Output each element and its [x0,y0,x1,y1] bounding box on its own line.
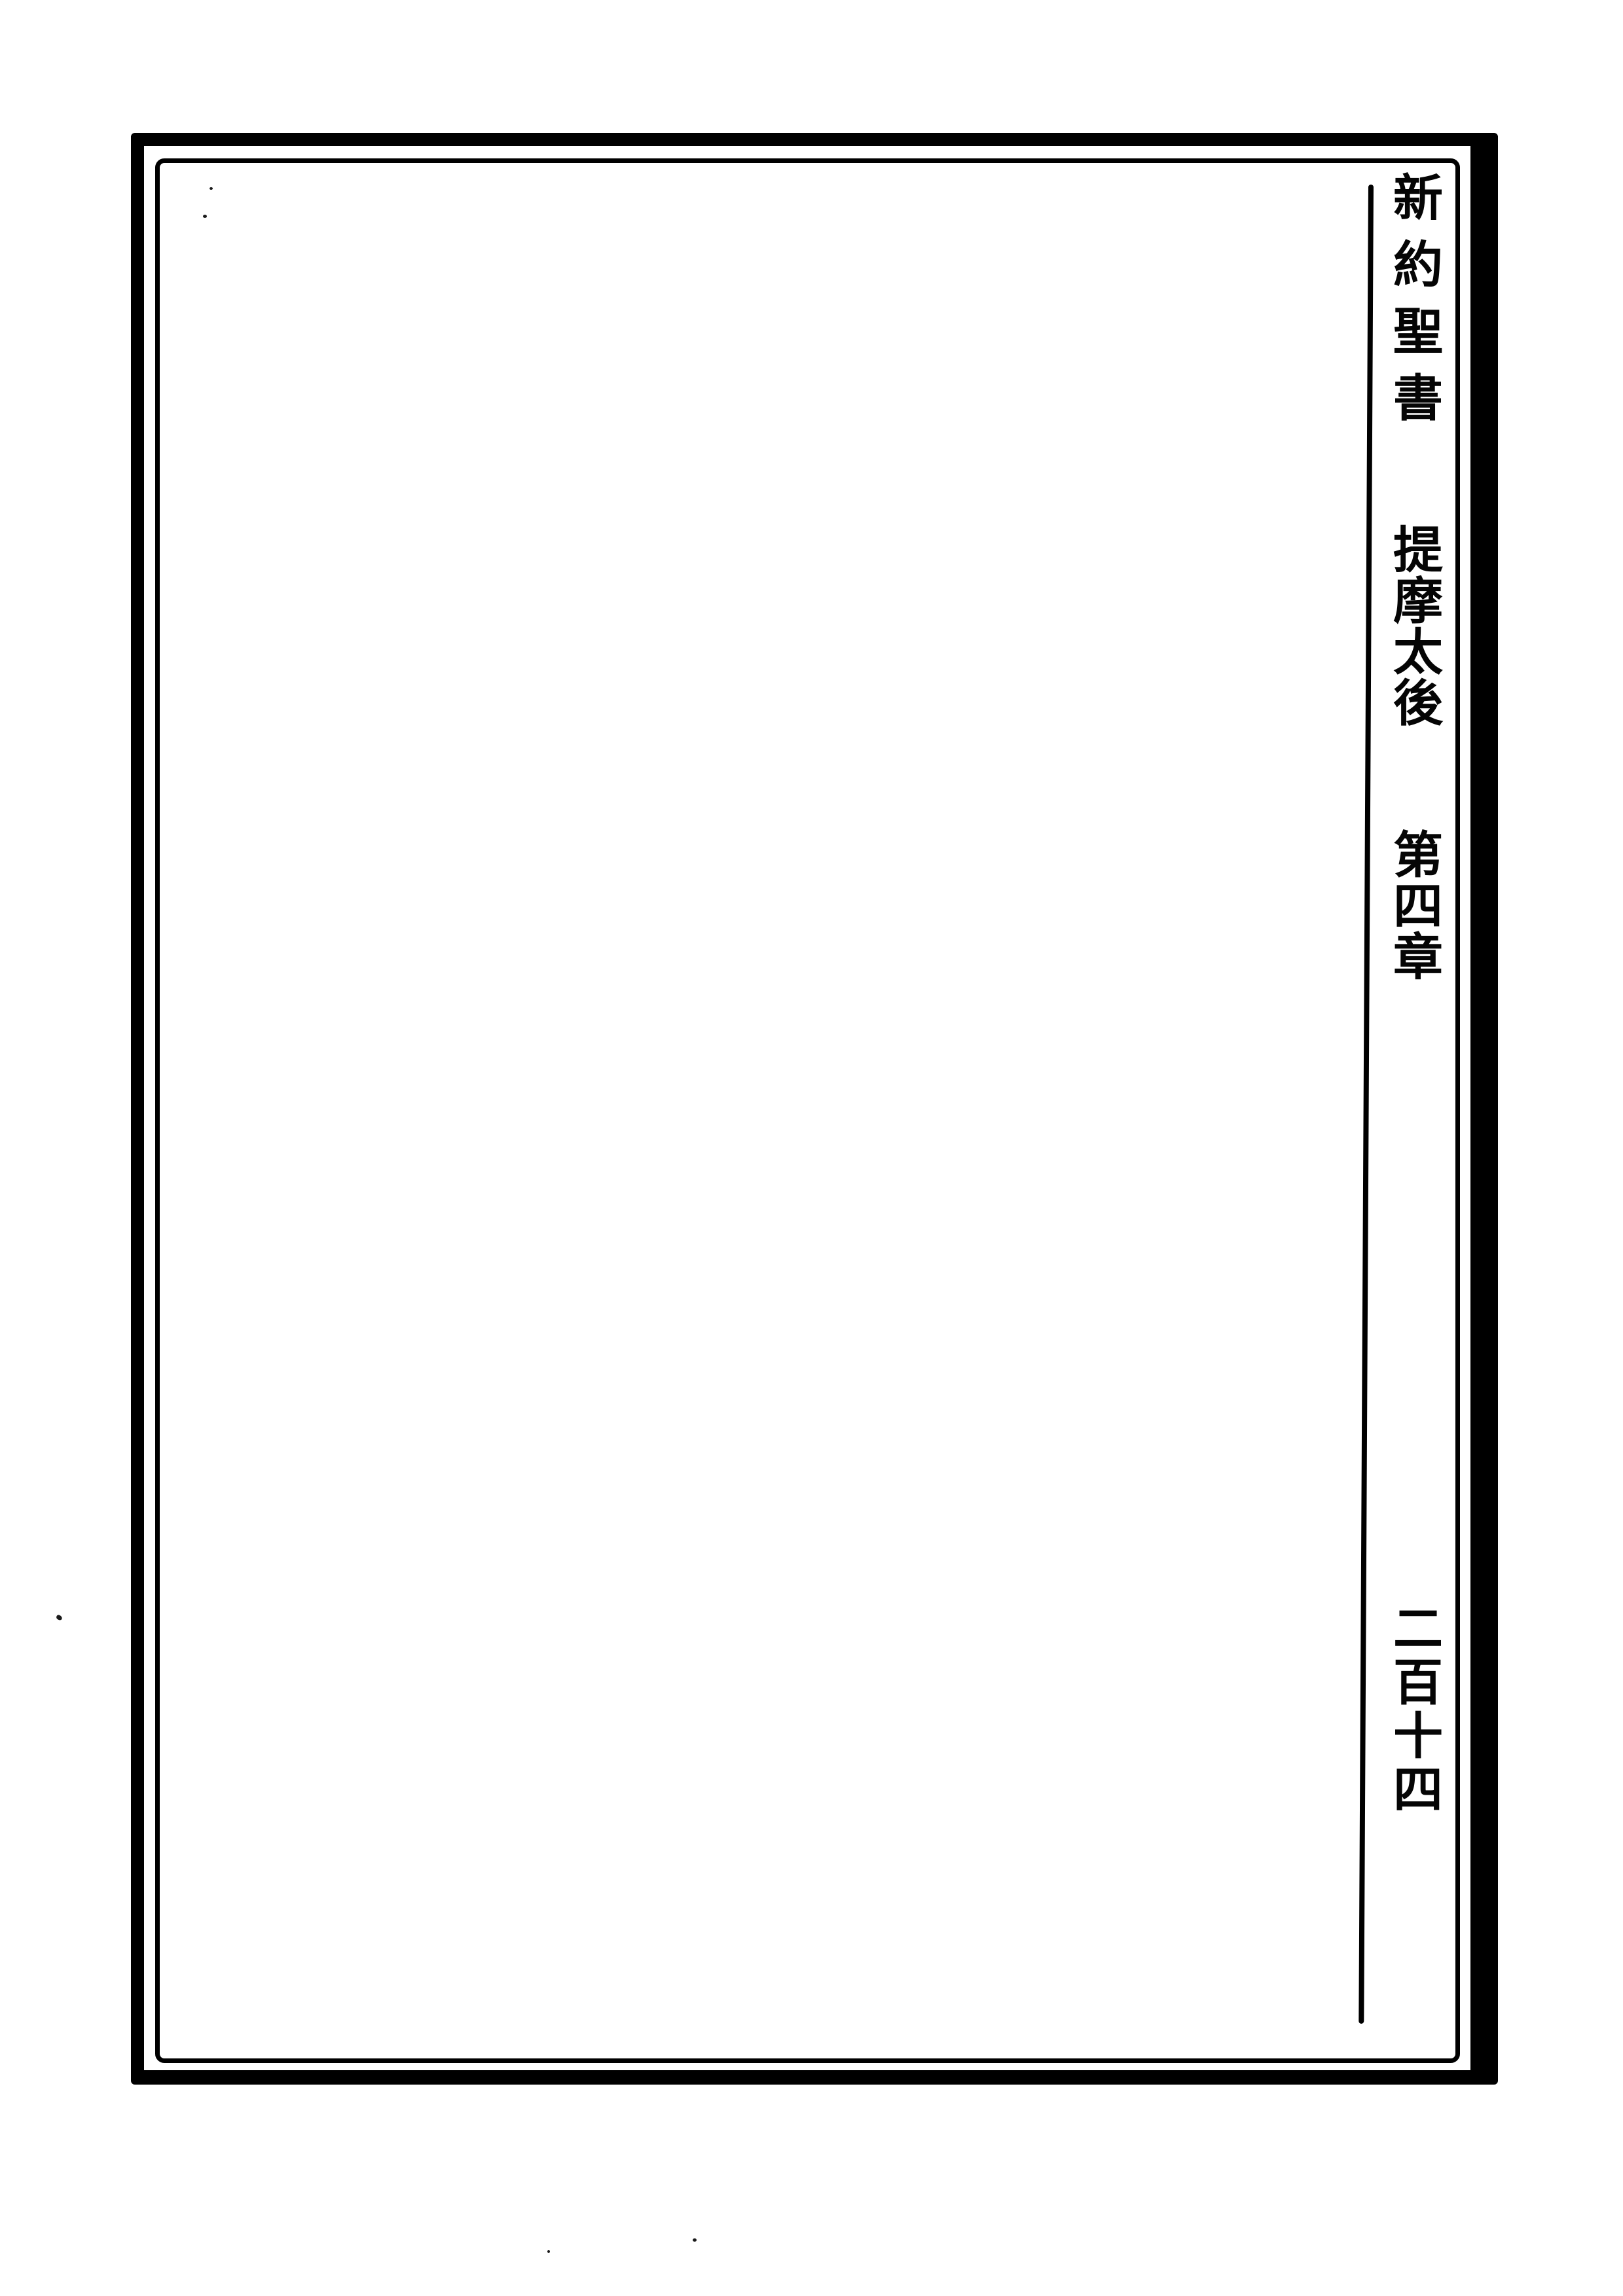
page-body-blank [164,167,1362,2052]
page-number-vertical: 二百十四 [1388,1602,1439,1817]
scan-speck [210,187,213,190]
scan-speck [693,2238,697,2242]
scanned-page: 新約聖書 提摩太後 第四章 二百十四 [0,0,1623,2296]
section-title-vertical: 提摩太後 [1388,524,1439,728]
book-title-vertical: 新約聖書 [1388,171,1439,439]
scan-speck [203,215,207,218]
scan-speck [547,2250,550,2253]
chapter-title-vertical: 第四章 [1388,829,1439,982]
scan-speck [56,1614,63,1621]
